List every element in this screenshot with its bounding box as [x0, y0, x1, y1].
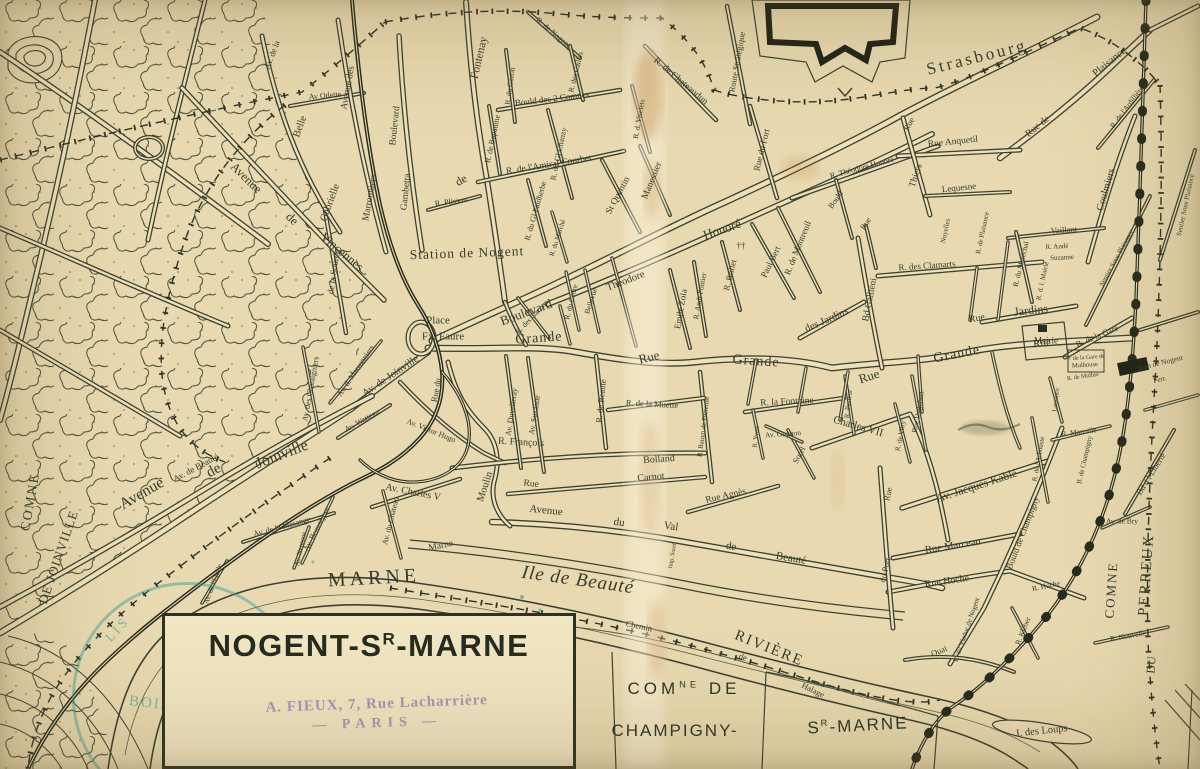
title-superscript: R — [383, 630, 397, 649]
champigny-label-line1: COMNE DE — [604, 679, 764, 699]
publisher-stamp: A. FIEUX, 7, Rue Lacharrière — PARIS — — [226, 691, 527, 737]
title-cartouche: NOGENT-SR-MARNE A. FIEUX, 7, Rue Lacharr… — [162, 613, 576, 769]
map-title: NOGENT-SR-MARNE — [165, 628, 573, 664]
vintage-map-postcard: Av. de laBelleGabrielleAv OdetteAvenuede… — [0, 0, 1200, 769]
champigny-label-line2: CHAMPIGNY- — [580, 721, 770, 741]
